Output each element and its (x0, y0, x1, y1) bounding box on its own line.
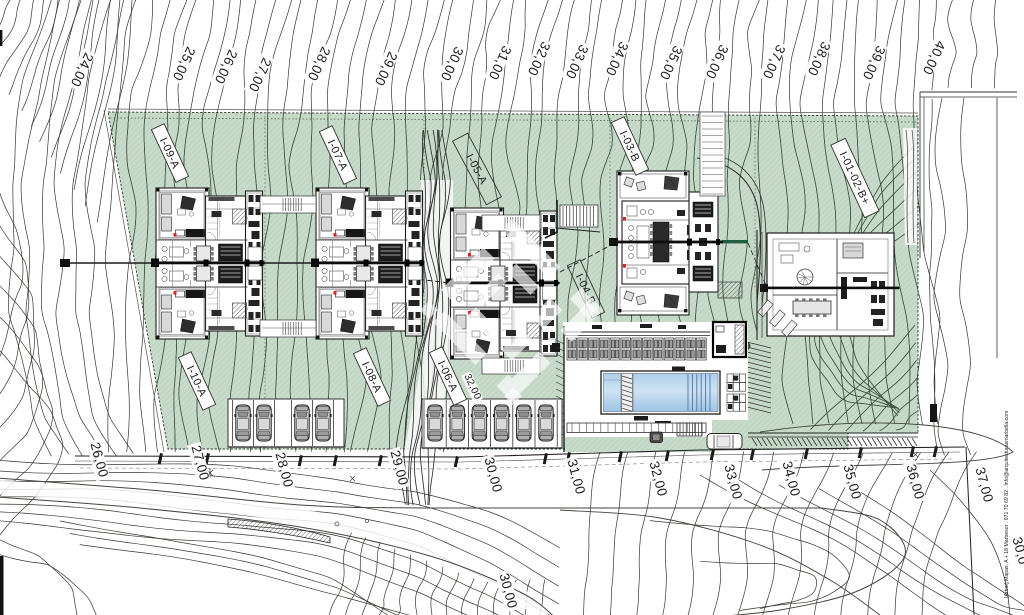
svg-text:[Arbor] Mapas, A + 18 Marbesor: [Arbor] Mapas, A + 18 Marbesor . 971 70 … (1004, 411, 1010, 598)
